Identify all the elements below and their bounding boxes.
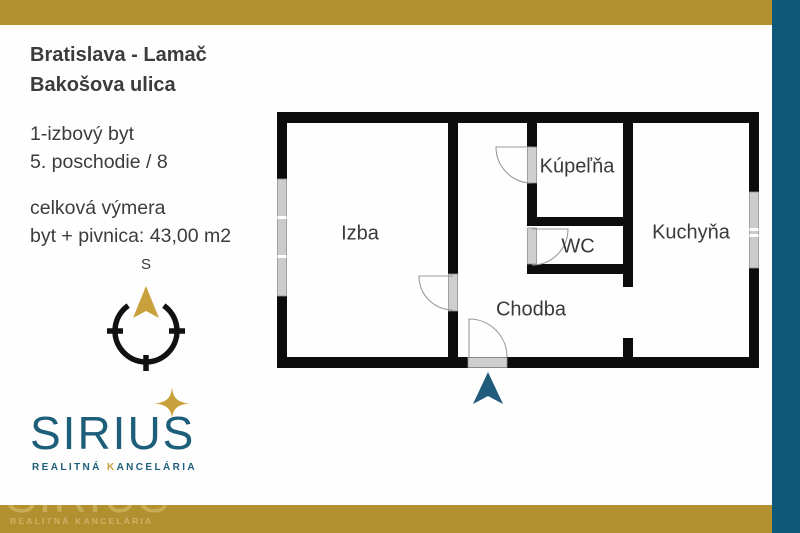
bottom-gold-bar: SIRIUS REALITNÁ KANCELÁRIA [0,505,772,533]
logo-tagline: REALITNÁ KANCELÁRIA [32,462,197,473]
entrance-arrow-icon [473,372,503,404]
door-swing-bathroom [496,147,532,183]
door-sills [449,147,537,368]
room-label-wc: WC [561,236,594,259]
door-swings [419,147,568,357]
room-label-izba: Izba [341,223,379,246]
door-sill-bathroom [528,147,537,183]
tagline-suffix: ANCELÁRIA [117,462,198,473]
room-label-chodba: Chodba [496,299,566,322]
property-flyer: Bratislava - Lamač Bakošova ulica 1-izbo… [0,0,800,533]
door-sill-wc [528,228,537,264]
tagline-gold-letter: K [107,462,117,473]
logo-brand-text: SIRIUS [30,410,195,456]
window-right [750,192,759,268]
room-label-kuchyna: Kuchyňa [652,222,730,245]
window-left [278,179,287,296]
door-swing-izba [419,276,453,310]
room-label-kupelna: Kúpeľňa [540,156,615,179]
agency-logo: SIRIUS REALITNÁ KANCELÁRIA [30,384,220,484]
door-swing-entrance [469,319,507,357]
door-sill-izba [449,274,458,311]
tagline-prefix: REALITNÁ [32,462,107,473]
door-sill-entrance [468,358,507,368]
watermark-tagline: REALITNÁ KANCELÁRIA [10,516,153,526]
